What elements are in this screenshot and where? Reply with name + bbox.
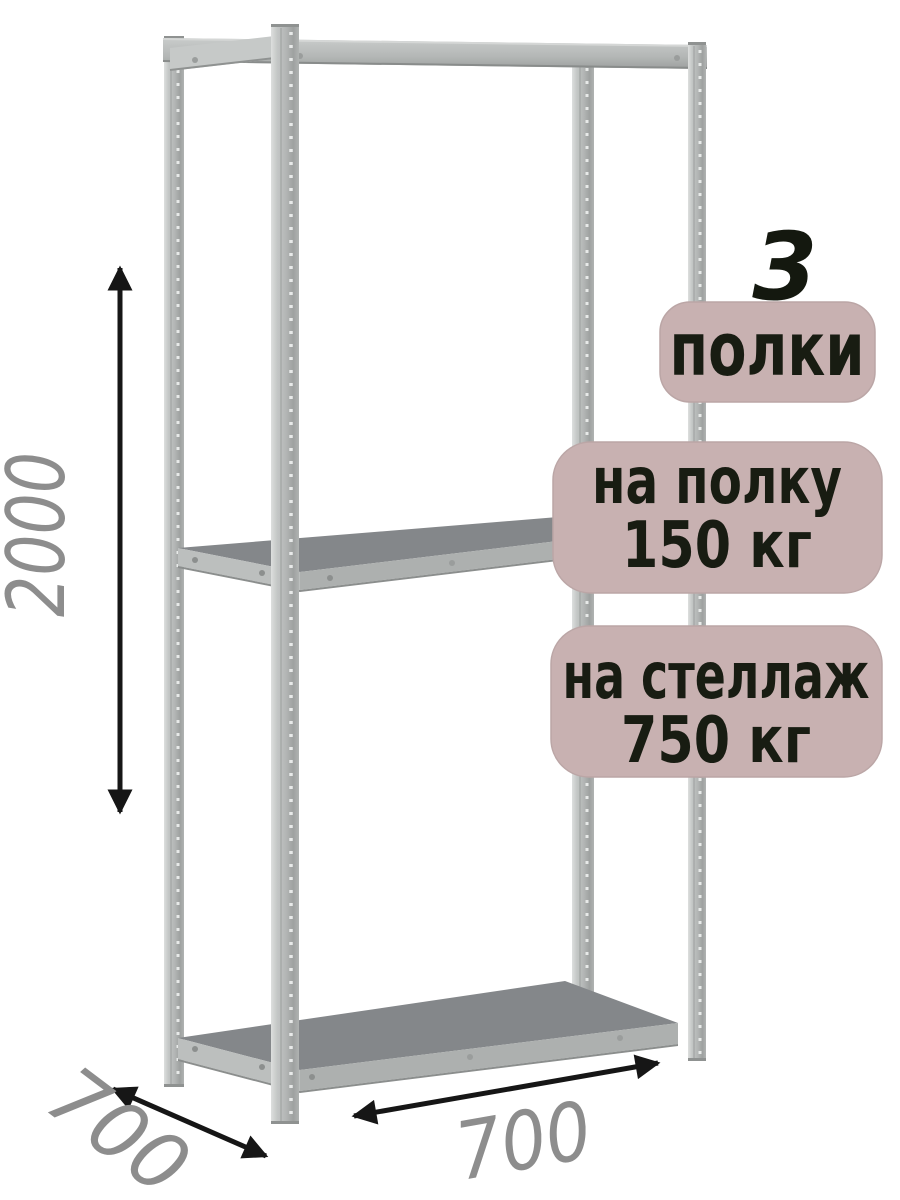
rack-load-line1: на стеллаж <box>563 640 870 714</box>
product-image: 2000 700 700 3 полки на полку 150 кг на … <box>0 0 900 1200</box>
rack-load-line2: 750 кг <box>621 704 811 778</box>
bottom-shelf <box>178 981 678 1093</box>
shelf-load-line1: на полку <box>592 445 842 519</box>
shelf-load-badge: на полку 150 кг <box>553 442 882 593</box>
rack-load-badge: на стеллаж 750 кг <box>551 626 882 778</box>
rack-post-front-left <box>271 24 299 1124</box>
middle-shelf <box>178 517 558 592</box>
width-value-label: 700 <box>449 1084 598 1199</box>
height-value-label: 2000 <box>0 452 83 617</box>
shelves-count-label: полки <box>670 307 865 393</box>
shelf-load-line2: 150 кг <box>622 509 812 583</box>
height-dimension: 2000 <box>0 268 120 812</box>
width-dimension: 700 <box>354 1063 658 1199</box>
